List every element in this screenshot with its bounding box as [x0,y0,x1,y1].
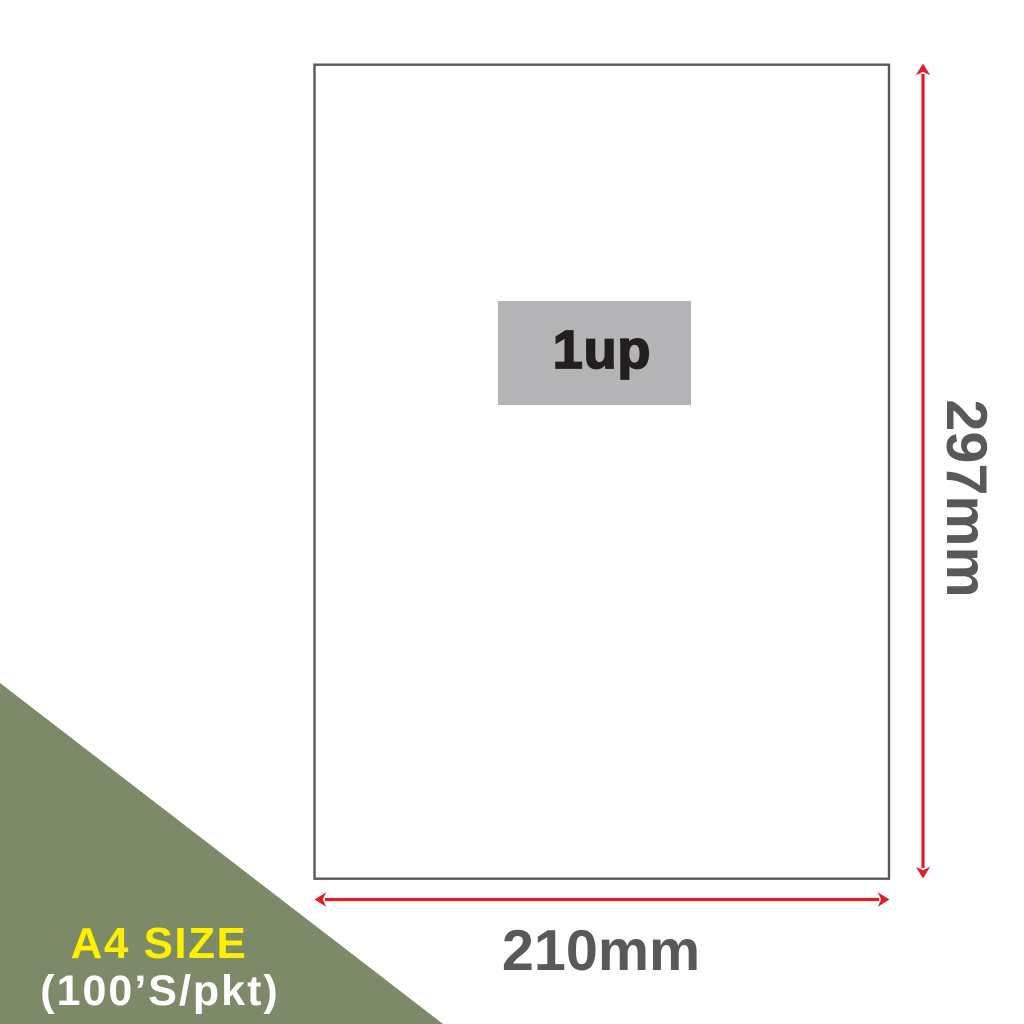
svg-text:210mm: 210mm [502,919,700,983]
svg-text:297mm: 297mm [934,399,998,597]
svg-text:A4 SIZE: A4 SIZE [71,919,248,968]
svg-text:1up: 1up [553,320,651,380]
svg-text:(100’S/pkt): (100’S/pkt) [40,967,279,1015]
